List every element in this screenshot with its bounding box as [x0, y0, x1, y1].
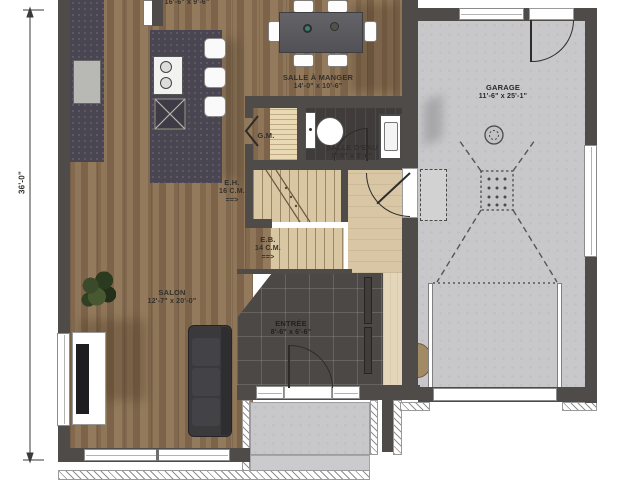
sofa-cushion-3: [192, 398, 220, 426]
powder-dims-text: 5'-0" x 3'-0": [302, 152, 402, 161]
pantry-text: G.M.: [246, 131, 286, 140]
tv: [76, 344, 89, 414]
dining-name-text: SALLE À MANGER: [258, 73, 378, 82]
stairs-down-name-text: E.B.: [242, 235, 294, 244]
front-door-leaf: [288, 345, 290, 388]
window-salon-left: [57, 333, 70, 426]
dining-chair-bottom-1: [293, 54, 314, 67]
wall-pantry-top: [245, 96, 402, 108]
wall-stair-top: [245, 160, 402, 170]
stairs-down-label: E.B. 14 C.M. ==>: [242, 235, 294, 262]
closet-door-panel-1: [364, 277, 372, 324]
walkway-hatch-bottom: [58, 470, 370, 480]
garage-wall-shadow: [424, 95, 442, 145]
garage-apron-hatch-left: [400, 402, 430, 411]
garage-stoop-dashed: [420, 169, 447, 221]
closet-floor: [383, 273, 402, 385]
dining-chair-bottom-2: [327, 54, 348, 67]
front-sidelight-right: [332, 386, 360, 399]
stairs-up-name-text: E.H.: [206, 178, 258, 187]
porch-hatch-right: [370, 400, 378, 455]
stairs-down-arrow-text: ==>: [242, 253, 294, 262]
wall-stair-divider: [245, 219, 272, 228]
porch-side-wall-stub: [382, 400, 393, 452]
table-decor-1: [303, 24, 312, 33]
stove-burner-bottom: [160, 77, 172, 89]
sofa-cushion-2: [192, 368, 220, 396]
salon-dims-text: 12'-7" x 20'-0": [122, 297, 222, 306]
stairs-up-label: E.H. 16 C.M. ==>: [206, 178, 258, 205]
dining-room-label: SALLE À MANGER 14'-0" x 10'-6": [258, 73, 378, 91]
dining-dims-text: 14'-0" x 10'-6": [258, 82, 378, 91]
bar-stool-1: [204, 38, 226, 59]
stairs-down-count-text: 14 C.M.: [242, 244, 294, 253]
garage-door-panel: [433, 388, 557, 401]
window-garage-top: [459, 8, 524, 20]
dining-table: [279, 12, 363, 53]
wall-stair-bottom-edge: [237, 269, 352, 274]
stairs-up-treads: [253, 170, 344, 222]
window-garage-right: [584, 145, 597, 257]
garage-door-track-left: [428, 283, 433, 388]
pantry-label: G.M.: [246, 131, 286, 140]
toilet-flush-dot: [309, 128, 312, 131]
powder-room-label: SALLE D'EAU 5'-0" x 3'-0": [302, 143, 402, 161]
front-sidelight-left: [256, 386, 284, 399]
stove-burner-top: [160, 61, 172, 73]
dining-chair-right: [364, 21, 377, 42]
stairs-up-arrow-text: ==>: [206, 196, 258, 205]
stairs-up-count-text: 16 C.M.: [206, 187, 258, 196]
overall-depth-label: 36'-0": [18, 158, 27, 208]
wall-stair-right: [341, 167, 348, 222]
dimension-line-36ft: [23, 8, 44, 462]
garage-door-track-right: [557, 283, 562, 388]
entry-name-text: ENTRÉE: [241, 319, 341, 328]
salon-name-text: SALON: [122, 288, 222, 297]
table-decor-2: [330, 22, 339, 31]
sofa-cushion-1: [192, 338, 220, 366]
kitchen-dims-text: 16'-6" x 9'-6": [137, 0, 237, 7]
garage-name-text: GARAGE: [443, 83, 563, 92]
garage-label: GARAGE 11'-6" x 25'-1": [443, 83, 563, 101]
garage-man-door-opening: [529, 8, 574, 20]
porch-hatch-left: [242, 400, 250, 478]
bar-stool-3: [204, 96, 226, 117]
garage-apron-hatch-right: [562, 402, 597, 411]
powder-name-text: SALLE D'EAU: [302, 143, 402, 152]
kitchen-sink: [73, 60, 101, 104]
bar-stool-2: [204, 67, 226, 88]
entry-dims-text: 8'-6" x 6'-6": [241, 328, 341, 337]
sofa-back: [221, 327, 231, 435]
kitchen-dims-label: 16'-6" x 9'-6": [137, 0, 237, 7]
closet-door-panel-2: [364, 327, 372, 374]
salon-label: SALON 12'-7" x 20'-0": [122, 288, 222, 306]
plant: [78, 268, 120, 312]
garage-man-door-leaf: [530, 20, 532, 62]
wall-pantry-left-upper: [245, 108, 253, 118]
entry-label: ENTRÉE 8'-6" x 6'-6": [241, 319, 341, 337]
window-salon-bottom-divider: [156, 449, 159, 461]
porch-slab: [250, 402, 370, 455]
overall-depth-text: 36'-0": [18, 158, 27, 208]
garage-dims-text: 11'-6" x 25'-1": [443, 92, 563, 101]
floor-plan: 16'-6" x 9'-6" SALLE À MANGER 14'-0" x 1…: [0, 0, 640, 480]
